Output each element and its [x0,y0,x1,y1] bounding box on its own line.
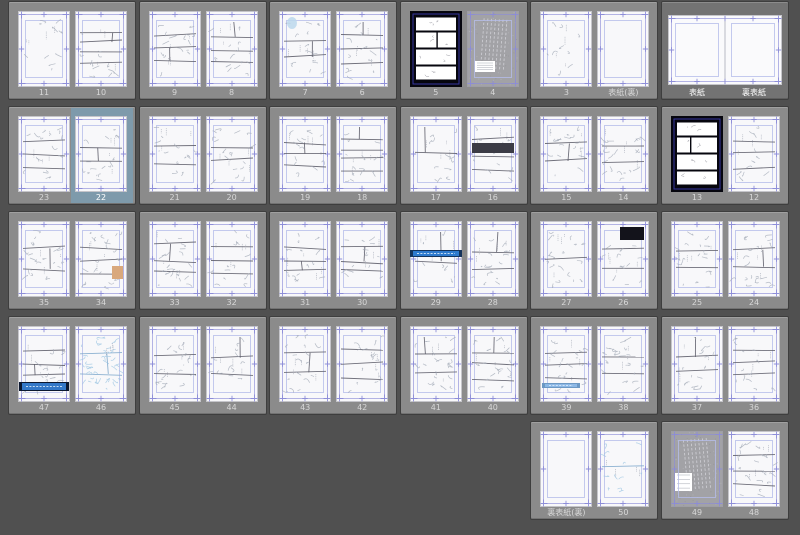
page-thumbnail[interactable] [597,431,649,507]
page-label: 46 [71,402,131,413]
page-manager-grid: 11109876543表紙(裏)表紙裏表紙2322212019181716151… [0,0,800,535]
page-thumbnail[interactable] [206,116,258,192]
page-label: 表紙 [667,87,727,98]
page-thumbnail[interactable] [149,221,201,297]
page-label: 29 [406,297,466,308]
spread-item[interactable]: 2928 [401,212,527,309]
page-thumbnail[interactable] [540,326,592,402]
page-thumbnail[interactable] [597,221,649,297]
spread-item[interactable]: 3938 [531,317,657,414]
page-label: 27 [536,297,596,308]
page-label: 5 [406,87,466,98]
page-label: 16 [463,192,523,203]
page-label: 4 [463,87,523,98]
page-thumbnail[interactable] [336,221,388,297]
spread-item[interactable]: 4746 [9,317,135,414]
page-thumbnail[interactable] [671,431,723,507]
page-label: 13 [667,192,727,203]
page-label: 6 [332,87,392,98]
page-thumbnail[interactable] [75,221,127,297]
page-thumbnail[interactable] [540,116,592,192]
spread-item[interactable]: 2726 [531,212,657,309]
page-label: 22 [71,192,131,203]
page-thumbnail[interactable] [467,221,519,297]
page-thumbnail[interactable] [671,326,723,402]
spread-item[interactable]: 1918 [270,107,396,204]
page-label: 40 [463,402,523,413]
page-label: 裏表紙(裏) [536,507,596,518]
spread-item[interactable]: 裏表紙(裏)50 [531,422,657,519]
page-thumbnail[interactable] [597,116,649,192]
cover-spread-thumbnail[interactable] [668,15,782,85]
page-thumbnail[interactable] [540,11,592,87]
spread-item[interactable]: 4342 [270,317,396,414]
page-label: 11 [14,87,74,98]
page-label: 21 [145,192,205,203]
spread-item[interactable]: 2120 [140,107,266,204]
spread-item[interactable]: 3表紙(裏) [531,2,657,99]
page-label: 44 [202,402,262,413]
spread-item[interactable]: 2322 [9,107,135,204]
page-thumbnail[interactable] [336,326,388,402]
page-label: 19 [275,192,335,203]
page-label: 38 [593,402,653,413]
page-thumbnail[interactable] [467,326,519,402]
page-thumbnail[interactable] [279,221,331,297]
page-thumbnail[interactable] [279,326,331,402]
page-label: 32 [202,297,262,308]
page-thumbnail[interactable] [18,11,70,87]
page-label: 42 [332,402,392,413]
page-thumbnail[interactable] [410,221,462,297]
page-label: 20 [202,192,262,203]
spread-item[interactable]: 1110 [9,2,135,99]
page-label: 45 [145,402,205,413]
spread-item[interactable]: 1716 [401,107,527,204]
page-label: 17 [406,192,466,203]
page-thumbnail[interactable] [149,326,201,402]
page-label: 34 [71,297,131,308]
page-thumbnail[interactable] [671,116,723,192]
page-thumbnail[interactable] [149,11,201,87]
page-label: 表紙(裏) [593,87,653,98]
page-label: 30 [332,297,392,308]
page-label: 18 [332,192,392,203]
page-label: 50 [593,507,653,518]
page-label: 47 [14,402,74,413]
page-thumbnail[interactable] [540,221,592,297]
spread-item[interactable]: 2524 [662,212,788,309]
page-thumbnail[interactable] [18,116,70,192]
page-thumbnail[interactable] [540,431,592,507]
page-thumbnail[interactable] [597,11,649,87]
page-thumbnail[interactable] [149,116,201,192]
spread-item[interactable]: 3332 [140,212,266,309]
page-thumbnail[interactable] [75,116,127,192]
page-thumbnail[interactable] [279,11,331,87]
spread-item[interactable]: 1514 [531,107,657,204]
page-label: 28 [463,297,523,308]
page-label: 7 [275,87,335,98]
page-thumbnail[interactable] [467,116,519,192]
page-thumbnail[interactable] [410,326,462,402]
page-thumbnail[interactable] [671,221,723,297]
page-label: 31 [275,297,335,308]
spread-item[interactable]: 3130 [270,212,396,309]
page-thumbnail[interactable] [467,11,519,87]
spread-item[interactable]: 4948 [662,422,788,519]
page-thumbnail[interactable] [206,11,258,87]
spread-item[interactable]: 1312 [662,107,788,204]
page-label: 25 [667,297,727,308]
page-label: 37 [667,402,727,413]
page-thumbnail[interactable] [410,116,462,192]
page-thumbnail[interactable] [728,221,780,297]
page-thumbnail[interactable] [728,116,780,192]
page-label: 裏表紙 [724,87,784,98]
page-thumbnail[interactable] [336,116,388,192]
page-label: 24 [724,297,784,308]
page-thumbnail[interactable] [597,326,649,402]
page-thumbnail[interactable] [18,326,70,402]
page-thumbnail[interactable] [279,116,331,192]
spread-item[interactable]: 54 [401,2,527,99]
page-label: 48 [724,507,784,518]
page-label: 26 [593,297,653,308]
spread-item[interactable]: 4544 [140,317,266,414]
spread-item[interactable]: 76 [270,2,396,99]
page-thumbnail[interactable] [206,326,258,402]
page-label: 41 [406,402,466,413]
page-thumbnail[interactable] [206,221,258,297]
page-label: 3 [536,87,596,98]
page-label: 9 [145,87,205,98]
page-label: 39 [536,402,596,413]
spread-item[interactable]: 3736 [662,317,788,414]
page-label: 8 [202,87,262,98]
page-label: 23 [14,192,74,203]
page-label: 10 [71,87,131,98]
page-thumbnail[interactable] [728,326,780,402]
page-label: 12 [724,192,784,203]
page-label: 49 [667,507,727,518]
page-label: 43 [275,402,335,413]
page-thumbnail[interactable] [336,11,388,87]
page-label: 15 [536,192,596,203]
page-thumbnail[interactable] [728,431,780,507]
page-thumbnail[interactable] [410,11,462,87]
spread-item-selected[interactable]: 表紙裏表紙 [662,2,788,99]
page-thumbnail[interactable] [75,326,127,402]
page-label: 14 [593,192,653,203]
page-label: 36 [724,402,784,413]
page-thumbnail[interactable] [18,221,70,297]
page-thumbnail[interactable] [75,11,127,87]
spread-item[interactable]: 98 [140,2,266,99]
page-label: 33 [145,297,205,308]
spread-item[interactable]: 3534 [9,212,135,309]
spread-item[interactable]: 4140 [401,317,527,414]
page-label: 35 [14,297,74,308]
